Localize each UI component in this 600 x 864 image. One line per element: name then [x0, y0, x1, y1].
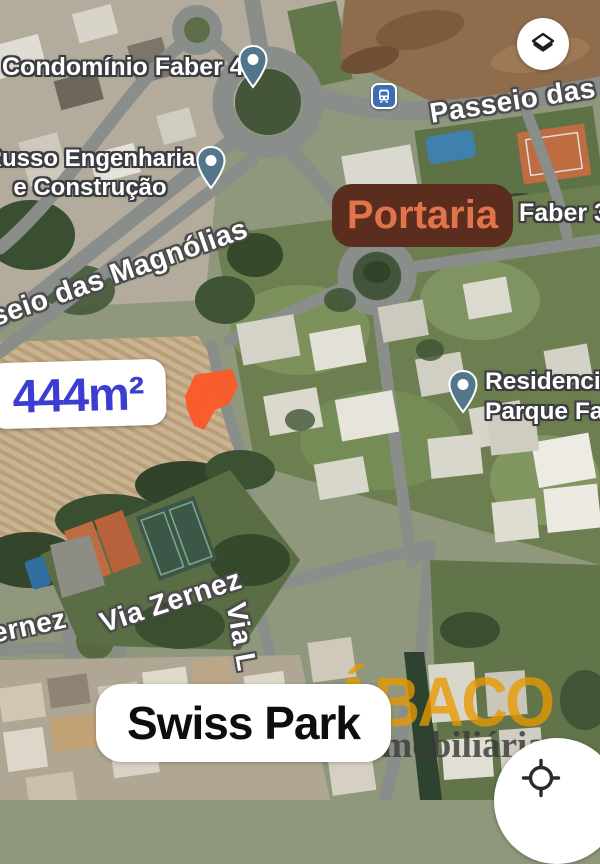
- lot-area-label: 444m²: [12, 365, 144, 423]
- poi-label-faber3: Faber 3: [519, 199, 600, 228]
- layers-button[interactable]: [517, 18, 569, 70]
- map-pin-icon[interactable]: [238, 45, 268, 89]
- portaria-label: Portaria: [347, 193, 498, 238]
- poi-label-residencial: Residencial Parque Fab: [485, 367, 600, 426]
- poi-label-russo: Russo Engenharia e Construção: [0, 144, 196, 202]
- swiss-park-annotation: Swiss Park: [96, 684, 391, 762]
- poi-label-russo-line1: Russo Engenharia: [0, 145, 195, 172]
- layers-icon: [530, 31, 556, 57]
- lot-area-annotation: 444m²: [0, 359, 167, 430]
- bus-stop-icon[interactable]: [371, 83, 397, 109]
- poi-label-residencial-line1: Residencial: [485, 368, 600, 395]
- poi-label-residencial-line2: Parque Fab: [485, 398, 600, 425]
- swiss-park-label: Swiss Park: [127, 696, 360, 750]
- map-screen: { "map": { "poi_labels": { "condominio_f…: [0, 0, 600, 800]
- map-pin-icon[interactable]: [196, 146, 226, 190]
- crosshair-locate-icon: [521, 758, 561, 798]
- portaria-annotation: Portaria: [332, 184, 513, 247]
- poi-label-condominio-faber4: Condomínio Faber 4: [2, 53, 244, 82]
- lot-plot-polygon: [175, 364, 245, 436]
- bus-glyph: [376, 88, 392, 104]
- map-pin-icon[interactable]: [448, 370, 478, 414]
- poi-label-russo-line2: e Construção: [13, 174, 166, 201]
